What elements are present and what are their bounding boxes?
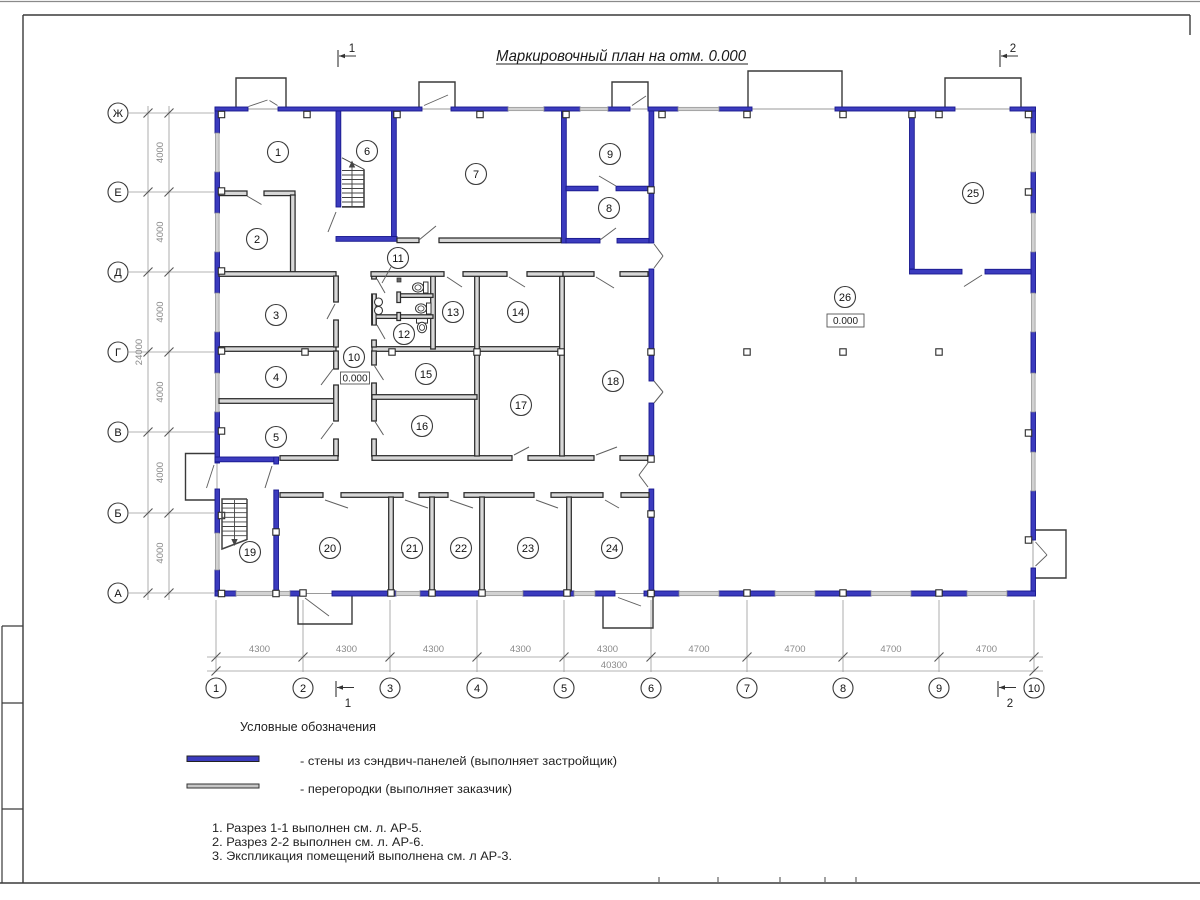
svg-text:Условные обозначения: Условные обозначения — [240, 720, 376, 734]
svg-text:10: 10 — [1028, 683, 1040, 695]
svg-text:0.000: 0.000 — [342, 373, 367, 384]
svg-text:9: 9 — [936, 683, 942, 695]
svg-text:2. Разрез 2-2 выполнен см. л.: 2. Разрез 2-2 выполнен см. л. АР-6. — [212, 835, 424, 849]
svg-text:8: 8 — [606, 203, 612, 215]
svg-text:4000: 4000 — [155, 142, 166, 163]
svg-text:23: 23 — [522, 543, 534, 555]
svg-text:1: 1 — [213, 683, 219, 695]
svg-text:26: 26 — [839, 292, 851, 304]
svg-text:4700: 4700 — [976, 644, 997, 655]
svg-text:2: 2 — [1007, 698, 1013, 710]
svg-text:2: 2 — [1010, 43, 1016, 55]
svg-text:Маркировочный план на отм. 0.0: Маркировочный план на отм. 0.000 — [496, 48, 746, 65]
svg-text:4700: 4700 — [784, 644, 805, 655]
svg-text:Б: Б — [114, 508, 121, 520]
svg-text:4000: 4000 — [155, 221, 166, 242]
svg-text:4: 4 — [273, 372, 279, 384]
svg-text:3: 3 — [273, 310, 279, 322]
svg-text:4300: 4300 — [510, 644, 531, 655]
svg-text:1: 1 — [345, 698, 351, 710]
svg-text:6: 6 — [364, 146, 370, 158]
svg-text:7: 7 — [473, 169, 479, 181]
svg-text:6: 6 — [648, 683, 654, 695]
svg-text:4700: 4700 — [688, 644, 709, 655]
svg-text:9: 9 — [607, 149, 613, 161]
svg-text:Г: Г — [115, 347, 121, 359]
svg-text:21: 21 — [406, 543, 418, 555]
svg-text:4300: 4300 — [336, 644, 357, 655]
svg-text:14: 14 — [512, 307, 524, 319]
svg-text:0.000: 0.000 — [833, 316, 858, 327]
svg-text:Д: Д — [114, 267, 122, 279]
svg-text:4300: 4300 — [423, 644, 444, 655]
svg-text:3: 3 — [387, 683, 393, 695]
svg-text:22: 22 — [455, 543, 467, 555]
svg-text:19: 19 — [244, 547, 256, 559]
svg-text:8: 8 — [840, 683, 846, 695]
svg-text:24: 24 — [606, 543, 618, 555]
svg-text:4300: 4300 — [249, 644, 270, 655]
svg-text:- стены из сэндвич-панелей (вы: - стены из сэндвич-панелей (выполняет за… — [300, 754, 617, 768]
svg-text:Ж: Ж — [113, 108, 123, 120]
svg-text:20: 20 — [324, 543, 336, 555]
svg-text:12: 12 — [398, 329, 410, 341]
svg-text:2: 2 — [254, 234, 260, 246]
svg-text:1. Разрез 1-1 выполнен см. л.: 1. Разрез 1-1 выполнен см. л. АР-5. — [212, 821, 422, 835]
svg-text:15: 15 — [420, 369, 432, 381]
svg-text:24000: 24000 — [134, 339, 145, 365]
svg-text:10: 10 — [348, 352, 360, 364]
svg-text:3. Экспликация помещений выпол: 3. Экспликация помещений выполнена см. л… — [212, 849, 512, 863]
svg-text:Е: Е — [114, 187, 121, 199]
svg-text:4000: 4000 — [155, 542, 166, 563]
svg-text:40300: 40300 — [601, 660, 627, 671]
svg-text:- перегородки (выполняет заказ: - перегородки (выполняет заказчик) — [300, 782, 512, 796]
svg-text:25: 25 — [967, 188, 979, 200]
svg-text:4300: 4300 — [597, 644, 618, 655]
svg-text:4000: 4000 — [155, 381, 166, 402]
svg-text:18: 18 — [607, 376, 619, 388]
svg-text:13: 13 — [447, 307, 459, 319]
svg-text:7: 7 — [744, 683, 750, 695]
svg-text:А: А — [114, 588, 122, 600]
svg-text:4700: 4700 — [880, 644, 901, 655]
svg-text:11: 11 — [392, 253, 403, 265]
svg-text:В: В — [114, 427, 121, 439]
svg-text:17: 17 — [515, 400, 527, 412]
svg-text:1: 1 — [349, 43, 355, 55]
svg-text:16: 16 — [416, 421, 428, 433]
svg-text:1: 1 — [275, 147, 281, 159]
svg-text:4000: 4000 — [155, 301, 166, 322]
svg-text:5: 5 — [561, 683, 567, 695]
svg-text:2: 2 — [300, 683, 306, 695]
svg-text:5: 5 — [273, 432, 279, 444]
svg-text:4: 4 — [474, 683, 480, 695]
svg-text:4000: 4000 — [155, 462, 166, 483]
